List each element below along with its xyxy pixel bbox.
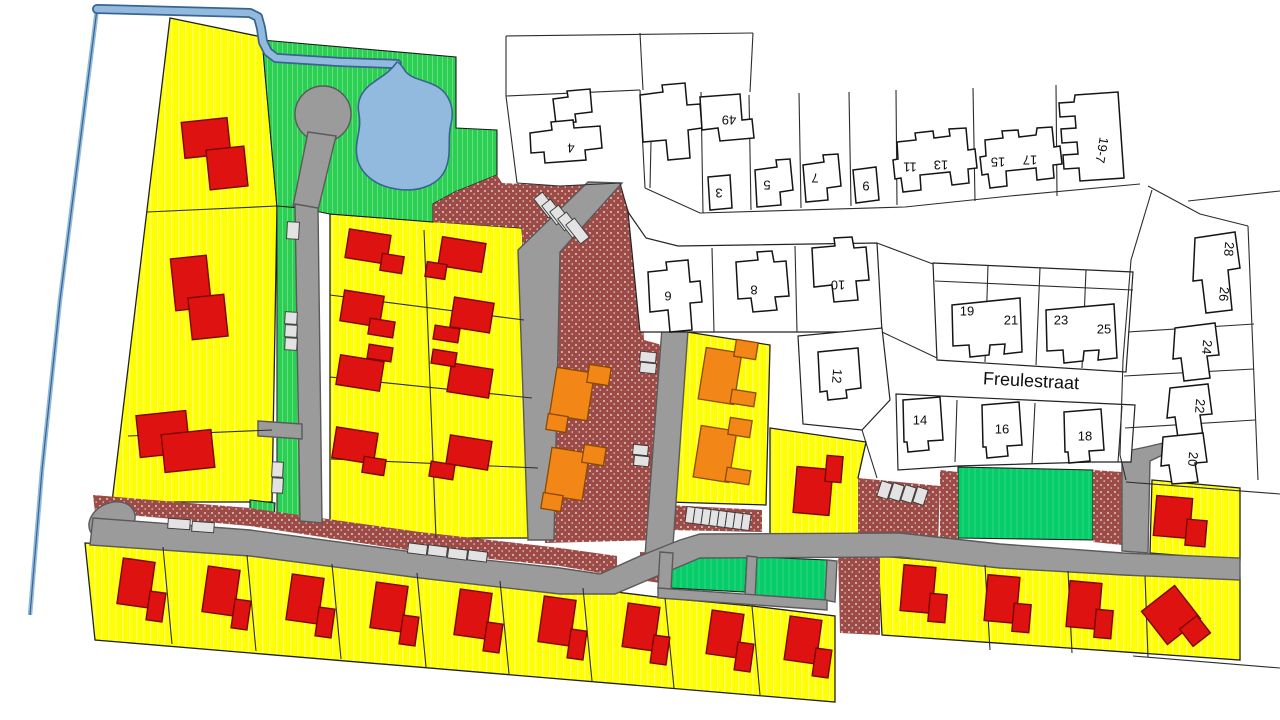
cadastral-line: [749, 95, 751, 210]
red-house: [231, 599, 251, 630]
house-number-label: 4: [567, 141, 574, 156]
red-house: [315, 607, 335, 638]
orange-house: [546, 414, 568, 433]
building-49-west: [640, 83, 702, 160]
house-number-label: 18: [1078, 428, 1092, 443]
plan-boundary-waterline: [30, 9, 97, 615]
road-west-vertical: [295, 204, 322, 523]
house-number-label: 9: [862, 179, 869, 194]
red-house: [450, 297, 494, 333]
site-plan-map: 44935791113151719-7681012192123251416182…: [0, 0, 1280, 720]
parking-slot: [633, 444, 649, 456]
park-green-2: [755, 557, 827, 600]
house-number-label: 26: [1216, 286, 1232, 302]
house-number-label: 28: [1221, 241, 1237, 257]
cadastral-line: [506, 96, 517, 183]
parking-slot: [285, 338, 298, 351]
parking-slot: [427, 545, 447, 557]
cadastral-line: [1188, 191, 1280, 201]
red-house: [928, 593, 947, 622]
parking-slot: [407, 543, 427, 555]
red-house: [188, 294, 228, 340]
cadastral-line: [750, 33, 753, 92]
red-house: [161, 429, 215, 472]
building-5: [755, 159, 793, 207]
red-house: [425, 262, 447, 280]
red-house: [362, 456, 386, 475]
house-number-label: 15: [991, 155, 1005, 170]
orange-house: [734, 339, 758, 359]
house-number-label: 49: [722, 113, 736, 128]
house-number-label: 24: [1199, 339, 1215, 355]
footpath-2: [745, 556, 757, 598]
orange-house: [728, 417, 752, 437]
footpath-1: [658, 552, 673, 590]
park-green-east: [958, 467, 1093, 540]
house-number-label: 8: [750, 283, 757, 298]
orange-house: [725, 467, 751, 485]
cadastral-line: [882, 332, 937, 358]
parking-slot: [634, 455, 650, 467]
house-number-label: 10: [831, 278, 845, 293]
house-number-label: 5: [763, 178, 770, 193]
parking-slot: [285, 312, 298, 325]
parking-slot: [192, 521, 215, 533]
parking-slot: [447, 548, 467, 560]
red-house: [431, 349, 457, 367]
red-house: [825, 455, 843, 482]
building-4: [530, 120, 602, 163]
red-house: [1012, 603, 1031, 632]
building-19-7: [1059, 92, 1124, 181]
red-house: [380, 253, 404, 273]
cadastral-line: [1056, 85, 1057, 196]
red-house: [567, 629, 587, 660]
red-house: [812, 648, 832, 678]
cadastral-line: [1248, 226, 1258, 480]
house-number-label: 23: [1054, 312, 1068, 327]
building-unnumbered-a: [553, 89, 592, 124]
red-house: [1094, 609, 1113, 638]
red-house: [650, 635, 670, 665]
red-house: [399, 615, 419, 646]
parking-slot: [285, 325, 298, 338]
cadastral-line: [849, 92, 851, 206]
street-name-label: Freulestraat: [983, 368, 1080, 393]
house-number-label: 22: [1192, 398, 1208, 414]
parking-slot: [467, 550, 487, 562]
red-house: [368, 318, 395, 338]
house-number-label: 14: [913, 412, 927, 427]
parking-slot: [640, 351, 657, 363]
house-number-label: 3: [715, 186, 722, 201]
house-number-label: 20: [1185, 451, 1201, 467]
red-house: [433, 325, 460, 343]
site-plan-page: Freulestraat 44935791113151719-768101219…: [0, 0, 1280, 720]
paving-sliver-park-w: [940, 470, 958, 540]
cadastral-line: [799, 93, 801, 208]
house-number-label: 21: [1004, 312, 1018, 327]
house-number-label: 16: [995, 421, 1009, 436]
orange-house: [582, 444, 607, 465]
house-number-label: 7: [811, 171, 818, 186]
house-number-label: 19: [960, 303, 974, 318]
house-number-label: 13: [934, 158, 948, 173]
house-number-label: 6: [664, 289, 671, 304]
parking-slot: [168, 518, 191, 530]
red-house: [483, 622, 503, 653]
red-house: [146, 591, 166, 622]
orange-house: [541, 493, 563, 512]
house-number-label: 11: [903, 160, 917, 175]
orange-house: [730, 389, 756, 407]
cadastral-line: [973, 88, 975, 201]
orange-house: [587, 364, 612, 385]
house-number-label: 25: [1097, 321, 1111, 336]
red-house: [1185, 519, 1207, 547]
house-number-label: 12: [829, 368, 845, 384]
house-number-label: 17: [1023, 153, 1037, 168]
cadastral-line: [640, 33, 643, 90]
building-7: [803, 154, 841, 202]
parking-slot: [272, 462, 284, 478]
red-house: [206, 146, 248, 190]
parking-slot: [741, 514, 751, 531]
red-house: [429, 461, 455, 480]
red-house: [734, 642, 754, 672]
parking-slot: [272, 478, 284, 494]
red-house: [447, 363, 493, 398]
parking-slot: [640, 362, 657, 374]
footpath-3: [825, 560, 837, 602]
red-house: [367, 344, 393, 362]
parking-slot: [287, 222, 300, 240]
cadastral-line: [862, 430, 877, 478]
cadastral-line: [506, 33, 753, 36]
paving-sliver-park-e: [1093, 470, 1122, 545]
cadastral-line: [877, 243, 933, 264]
cadastral-line: [1148, 186, 1248, 226]
paving-block-mid: [838, 552, 880, 635]
